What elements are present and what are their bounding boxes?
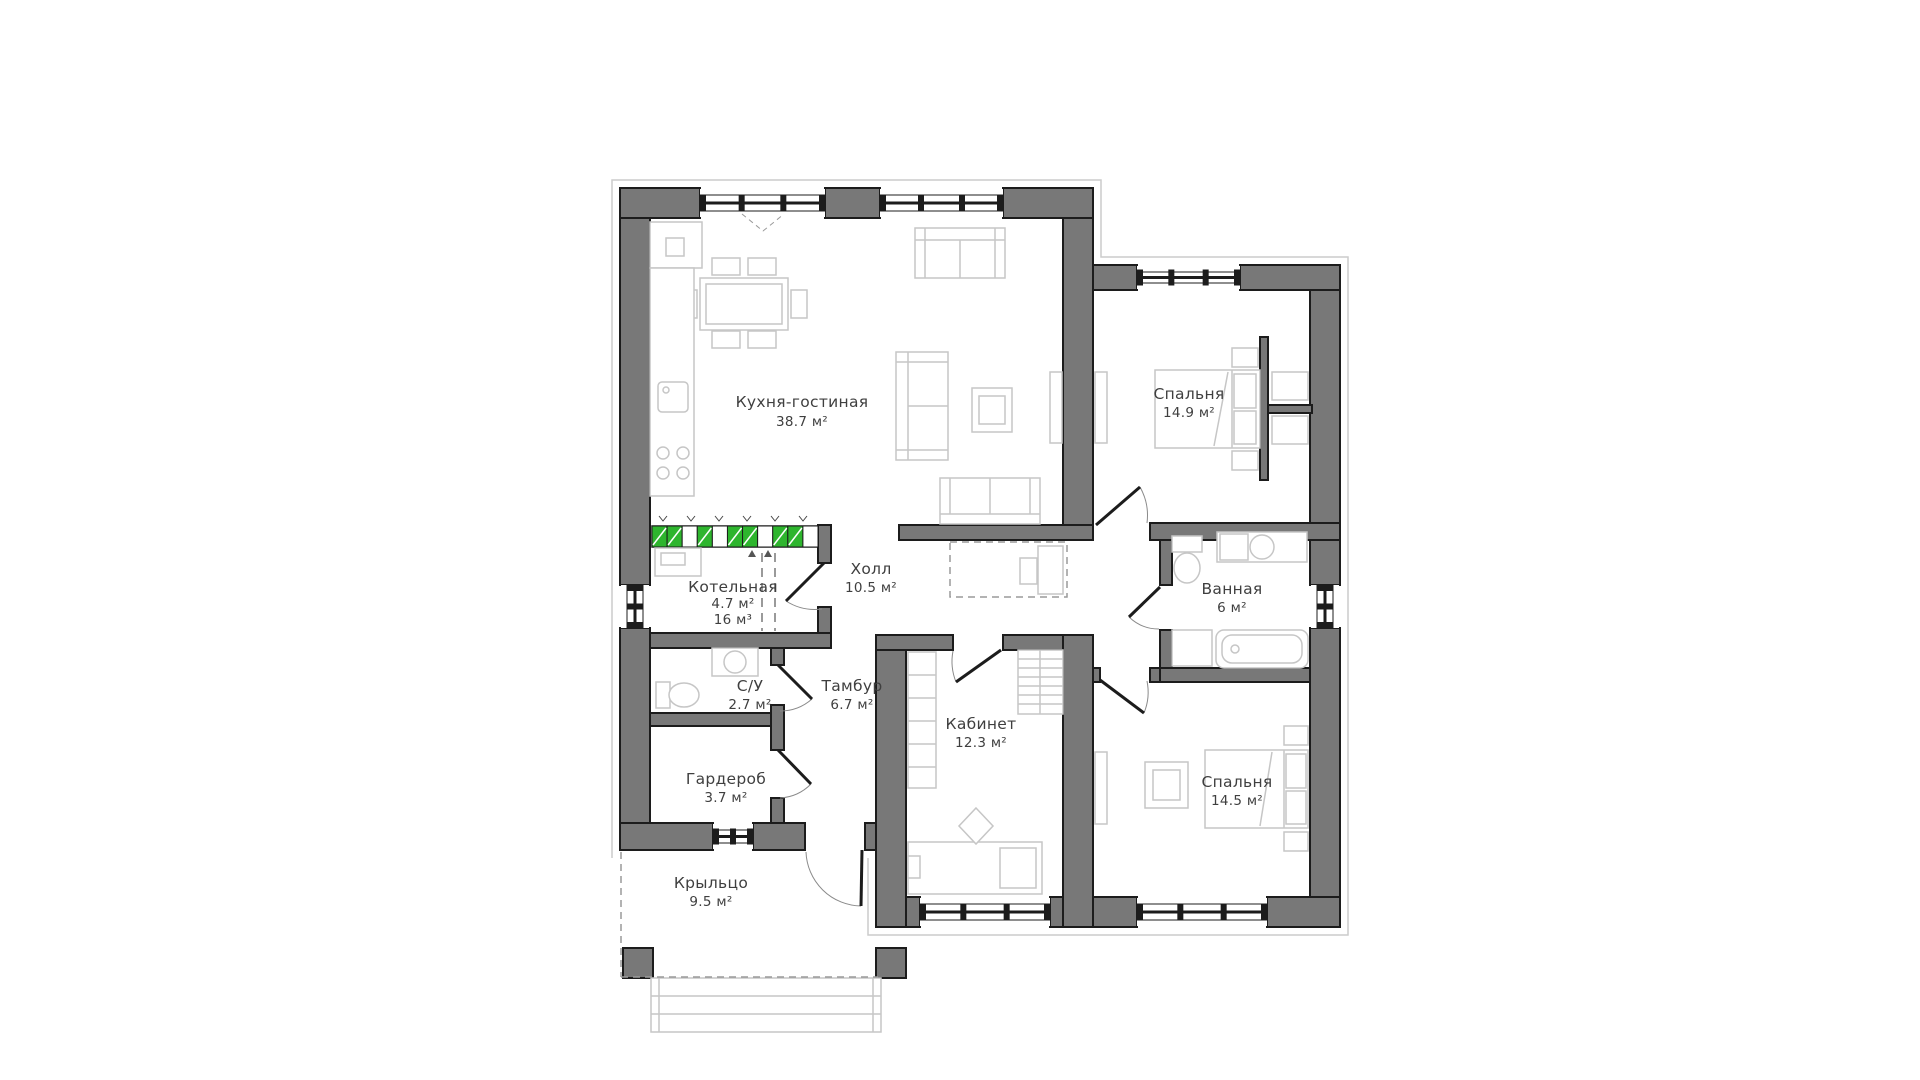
- wall-segment: [1310, 628, 1340, 927]
- wall-segment: [1267, 897, 1340, 927]
- window: [1311, 585, 1339, 628]
- kitchen-sink: [658, 382, 688, 412]
- radiator-panel: [908, 856, 920, 878]
- radiator-cell-green: [773, 526, 788, 547]
- window: [713, 824, 753, 849]
- wall-segment: [753, 823, 805, 850]
- room-name: Спальня: [1201, 773, 1272, 791]
- wall-segment: [906, 897, 920, 927]
- door-leaf: [786, 563, 824, 601]
- room-name: Ванная: [1201, 580, 1262, 598]
- window-mullion: [1177, 904, 1183, 920]
- room-area: 10.5 м²: [845, 580, 897, 596]
- window-sash: [920, 911, 1050, 914]
- window-sash: [880, 202, 1003, 205]
- window-jamb: [1317, 622, 1333, 628]
- room-label-vestibule: Тамбур 6.7 м²: [820, 677, 882, 713]
- room-name: Крыльцо: [674, 874, 748, 892]
- chair: [748, 331, 776, 348]
- wall-segment: [620, 218, 650, 585]
- room-area: 9.5 м²: [689, 894, 732, 910]
- wall-segment: [876, 635, 953, 650]
- supply-arrow: [764, 550, 772, 557]
- toilet-tank: [1172, 536, 1202, 552]
- wall-segment: [620, 188, 700, 218]
- bathtub-drain: [1231, 645, 1239, 653]
- stove-burner: [677, 447, 689, 459]
- window-mullion: [959, 195, 965, 211]
- door-wardrobe-room: [778, 750, 811, 798]
- window-mullion: [960, 904, 966, 920]
- chair: [791, 290, 807, 318]
- nightstand: [1284, 832, 1308, 851]
- room-area: 14.9 м²: [1163, 405, 1215, 421]
- washbasin: [1250, 535, 1274, 559]
- room-label-boiler-room: Котельная 4.7 м² 16 м³: [688, 578, 778, 628]
- room-name: Холл: [850, 560, 891, 578]
- window-sash: [1137, 911, 1267, 914]
- window-sash: [1137, 276, 1240, 279]
- wall-segment: [620, 628, 650, 850]
- chair: [712, 258, 740, 275]
- wall-segment: [1093, 668, 1100, 682]
- dresser-top: [1153, 770, 1180, 800]
- hall-desk: [1038, 546, 1063, 594]
- window-mullion: [1004, 904, 1010, 920]
- room-label-hall: Холл 10.5 м²: [845, 560, 897, 596]
- chair: [712, 331, 740, 348]
- tv-unit: [1050, 372, 1062, 443]
- room-area: 3.7 м²: [704, 790, 747, 806]
- door-leaf: [1129, 587, 1160, 617]
- door-entrance: [806, 850, 862, 906]
- wall-segment: [623, 948, 653, 978]
- wall-segment: [620, 823, 713, 850]
- pillow: [1234, 374, 1256, 408]
- nightstand: [1232, 451, 1258, 470]
- vent-arrow: [799, 516, 807, 521]
- stove-burner: [657, 467, 669, 479]
- window-jamb: [700, 195, 706, 211]
- window-jamb: [819, 195, 825, 211]
- window-jamb: [627, 585, 643, 591]
- door-bathroom: [1129, 587, 1160, 629]
- coffee-table-top: [979, 396, 1005, 424]
- radiator-cell: [803, 526, 818, 547]
- window-mullion: [1221, 904, 1227, 920]
- wall-segment: [1268, 405, 1312, 413]
- wall-segment: [1063, 635, 1093, 927]
- room-label-bathroom: Ванная 6 м²: [1201, 580, 1262, 616]
- window-mullion: [1168, 270, 1174, 286]
- washbasin: [724, 651, 746, 673]
- wall-segment: [1003, 188, 1093, 218]
- wall-segment: [1003, 635, 1063, 650]
- radiator-cell-green: [743, 526, 758, 547]
- wall-segment: [650, 633, 831, 648]
- fridge-inner: [666, 238, 684, 256]
- window-jamb: [747, 829, 753, 845]
- closet-shelf: [1272, 416, 1308, 444]
- vent-arrow: [771, 516, 779, 521]
- vent-arrow: [743, 516, 751, 521]
- pillow: [1286, 754, 1306, 788]
- window: [1137, 898, 1267, 926]
- hall-chair: [1020, 558, 1037, 584]
- room-name: Котельная: [688, 578, 778, 596]
- toilet-bowl: [1174, 553, 1200, 583]
- pillow: [1234, 411, 1256, 444]
- door-leaf: [861, 850, 862, 906]
- door-study: [952, 650, 1001, 682]
- room-area: 14.5 м²: [1211, 793, 1263, 809]
- nightstand: [1232, 348, 1258, 367]
- floor-plan-drawing: Кухня-гостиная 38.7 м² Спальня 14.9 м² Х…: [0, 0, 1920, 1080]
- radiator-cell: [682, 526, 697, 547]
- window: [1137, 266, 1240, 289]
- dresser: [1095, 372, 1107, 443]
- window: [700, 189, 825, 217]
- nightstand: [1284, 726, 1308, 745]
- room-label-wardrobe-room: Гардероб 3.7 м²: [686, 770, 766, 806]
- room-label-porch: Крыльцо 9.5 м²: [674, 874, 748, 910]
- door-leaf: [778, 750, 811, 784]
- room-area: 4.7 м²: [711, 596, 754, 612]
- washing-machine: [1220, 534, 1248, 560]
- window-jamb: [1137, 270, 1143, 286]
- supply-arrow: [748, 550, 756, 557]
- wall-segment: [650, 713, 771, 726]
- room-area: 38.7 м²: [776, 414, 828, 430]
- door-swing-arc: [1129, 617, 1159, 629]
- door-swing-arc: [786, 601, 822, 609]
- wall-segment: [876, 948, 906, 978]
- door-leaf: [1096, 487, 1140, 525]
- door-boiler-room: [786, 563, 824, 609]
- door-swing-arc: [1144, 681, 1148, 713]
- chair: [748, 258, 776, 275]
- radiator-cell-green: [652, 526, 667, 547]
- window-mullion: [730, 829, 736, 845]
- window-jamb: [880, 195, 886, 211]
- vent-arrow: [715, 516, 723, 521]
- wall-segment: [771, 798, 784, 823]
- room-name: Кабинет: [946, 715, 1017, 733]
- window-jamb: [1234, 270, 1240, 286]
- boiler-unit-inner: [661, 553, 685, 565]
- window-jamb: [713, 829, 719, 845]
- vent-arrow: [659, 516, 667, 521]
- dining-table-top: [706, 284, 782, 324]
- tv-unit: [1095, 752, 1107, 824]
- stove-burner: [677, 467, 689, 479]
- wall-segment: [1160, 540, 1172, 585]
- wall-segment: [1240, 265, 1340, 290]
- wall-segment: [865, 823, 876, 850]
- radiator-cell: [758, 526, 773, 547]
- radiator-cell: [712, 526, 727, 547]
- room-volume: 16 м³: [714, 612, 753, 628]
- room-name: С/У: [737, 677, 764, 695]
- room-name: Кухня-гостиная: [736, 393, 869, 411]
- wall-segment: [771, 705, 784, 750]
- room-label-study: Кабинет 12.3 м²: [946, 715, 1017, 751]
- door-swing-arc: [952, 651, 956, 682]
- wall-segment: [771, 648, 784, 665]
- room-area: 6 м²: [1217, 600, 1247, 616]
- room-name: Тамбур: [820, 677, 882, 695]
- window-jamb: [1044, 904, 1050, 920]
- wall-segment: [899, 525, 1093, 540]
- door-swing-arc: [806, 852, 861, 906]
- door-leaf: [778, 665, 812, 699]
- room-name: Гардероб: [686, 770, 766, 788]
- window: [880, 189, 1003, 217]
- window-jamb: [1317, 585, 1333, 591]
- wall-segment: [1093, 265, 1137, 290]
- bath-cabinet: [1172, 630, 1212, 666]
- room-area: 6.7 м²: [830, 697, 873, 713]
- stove-burner: [657, 447, 669, 459]
- window-mullion: [739, 195, 745, 211]
- radiator-cell-green: [788, 526, 803, 547]
- pillow: [1286, 791, 1306, 824]
- wall-segment: [1063, 218, 1093, 525]
- desk-chair: [959, 808, 993, 844]
- room-area: 2.7 м²: [728, 697, 771, 713]
- window-sash: [700, 202, 825, 205]
- vent-arrow: [687, 516, 695, 521]
- window: [920, 898, 1050, 926]
- window-mullion: [627, 604, 643, 610]
- porch-steps: [651, 978, 881, 1032]
- window-jamb: [627, 622, 643, 628]
- door-bedroom-top: [1096, 487, 1147, 525]
- door-swing-arc: [780, 784, 811, 798]
- desk-monitor: [1000, 848, 1036, 888]
- wall-segment: [825, 188, 880, 218]
- window-mullion: [1203, 270, 1209, 286]
- window-jamb: [1137, 904, 1143, 920]
- wall-segment: [818, 525, 831, 563]
- toilet-tank: [656, 682, 670, 708]
- window-jamb: [920, 904, 926, 920]
- radiator-cell-green: [667, 526, 682, 547]
- window-mullion: [1317, 604, 1333, 610]
- door-leaf: [1100, 680, 1144, 713]
- radiator-cell-green: [697, 526, 712, 547]
- room-area: 12.3 м²: [955, 735, 1007, 751]
- room-label-kitchen-living: Кухня-гостиная 38.7 м²: [736, 393, 869, 430]
- wall-segment: [1160, 668, 1310, 682]
- room-name: Спальня: [1153, 385, 1224, 403]
- window: [621, 585, 649, 628]
- floor-plan-page: Кухня-гостиная 38.7 м² Спальня 14.9 м² Х…: [0, 0, 1920, 1080]
- door-leaf: [956, 650, 1001, 682]
- toilet-bowl: [669, 683, 699, 707]
- door-bedroom-bottom: [1100, 680, 1148, 713]
- window-mullion: [918, 195, 924, 211]
- wall-segment: [1260, 337, 1268, 480]
- wall-segment: [1150, 668, 1160, 682]
- window-jamb: [997, 195, 1003, 211]
- window-jamb: [1261, 904, 1267, 920]
- window-mullion: [780, 195, 786, 211]
- faucet: [663, 387, 669, 393]
- door-swing-arc: [1140, 487, 1147, 523]
- room-label-wc: С/У 2.7 м²: [728, 677, 771, 713]
- radiator-cell-green: [727, 526, 742, 547]
- closet-shelf: [1272, 372, 1308, 400]
